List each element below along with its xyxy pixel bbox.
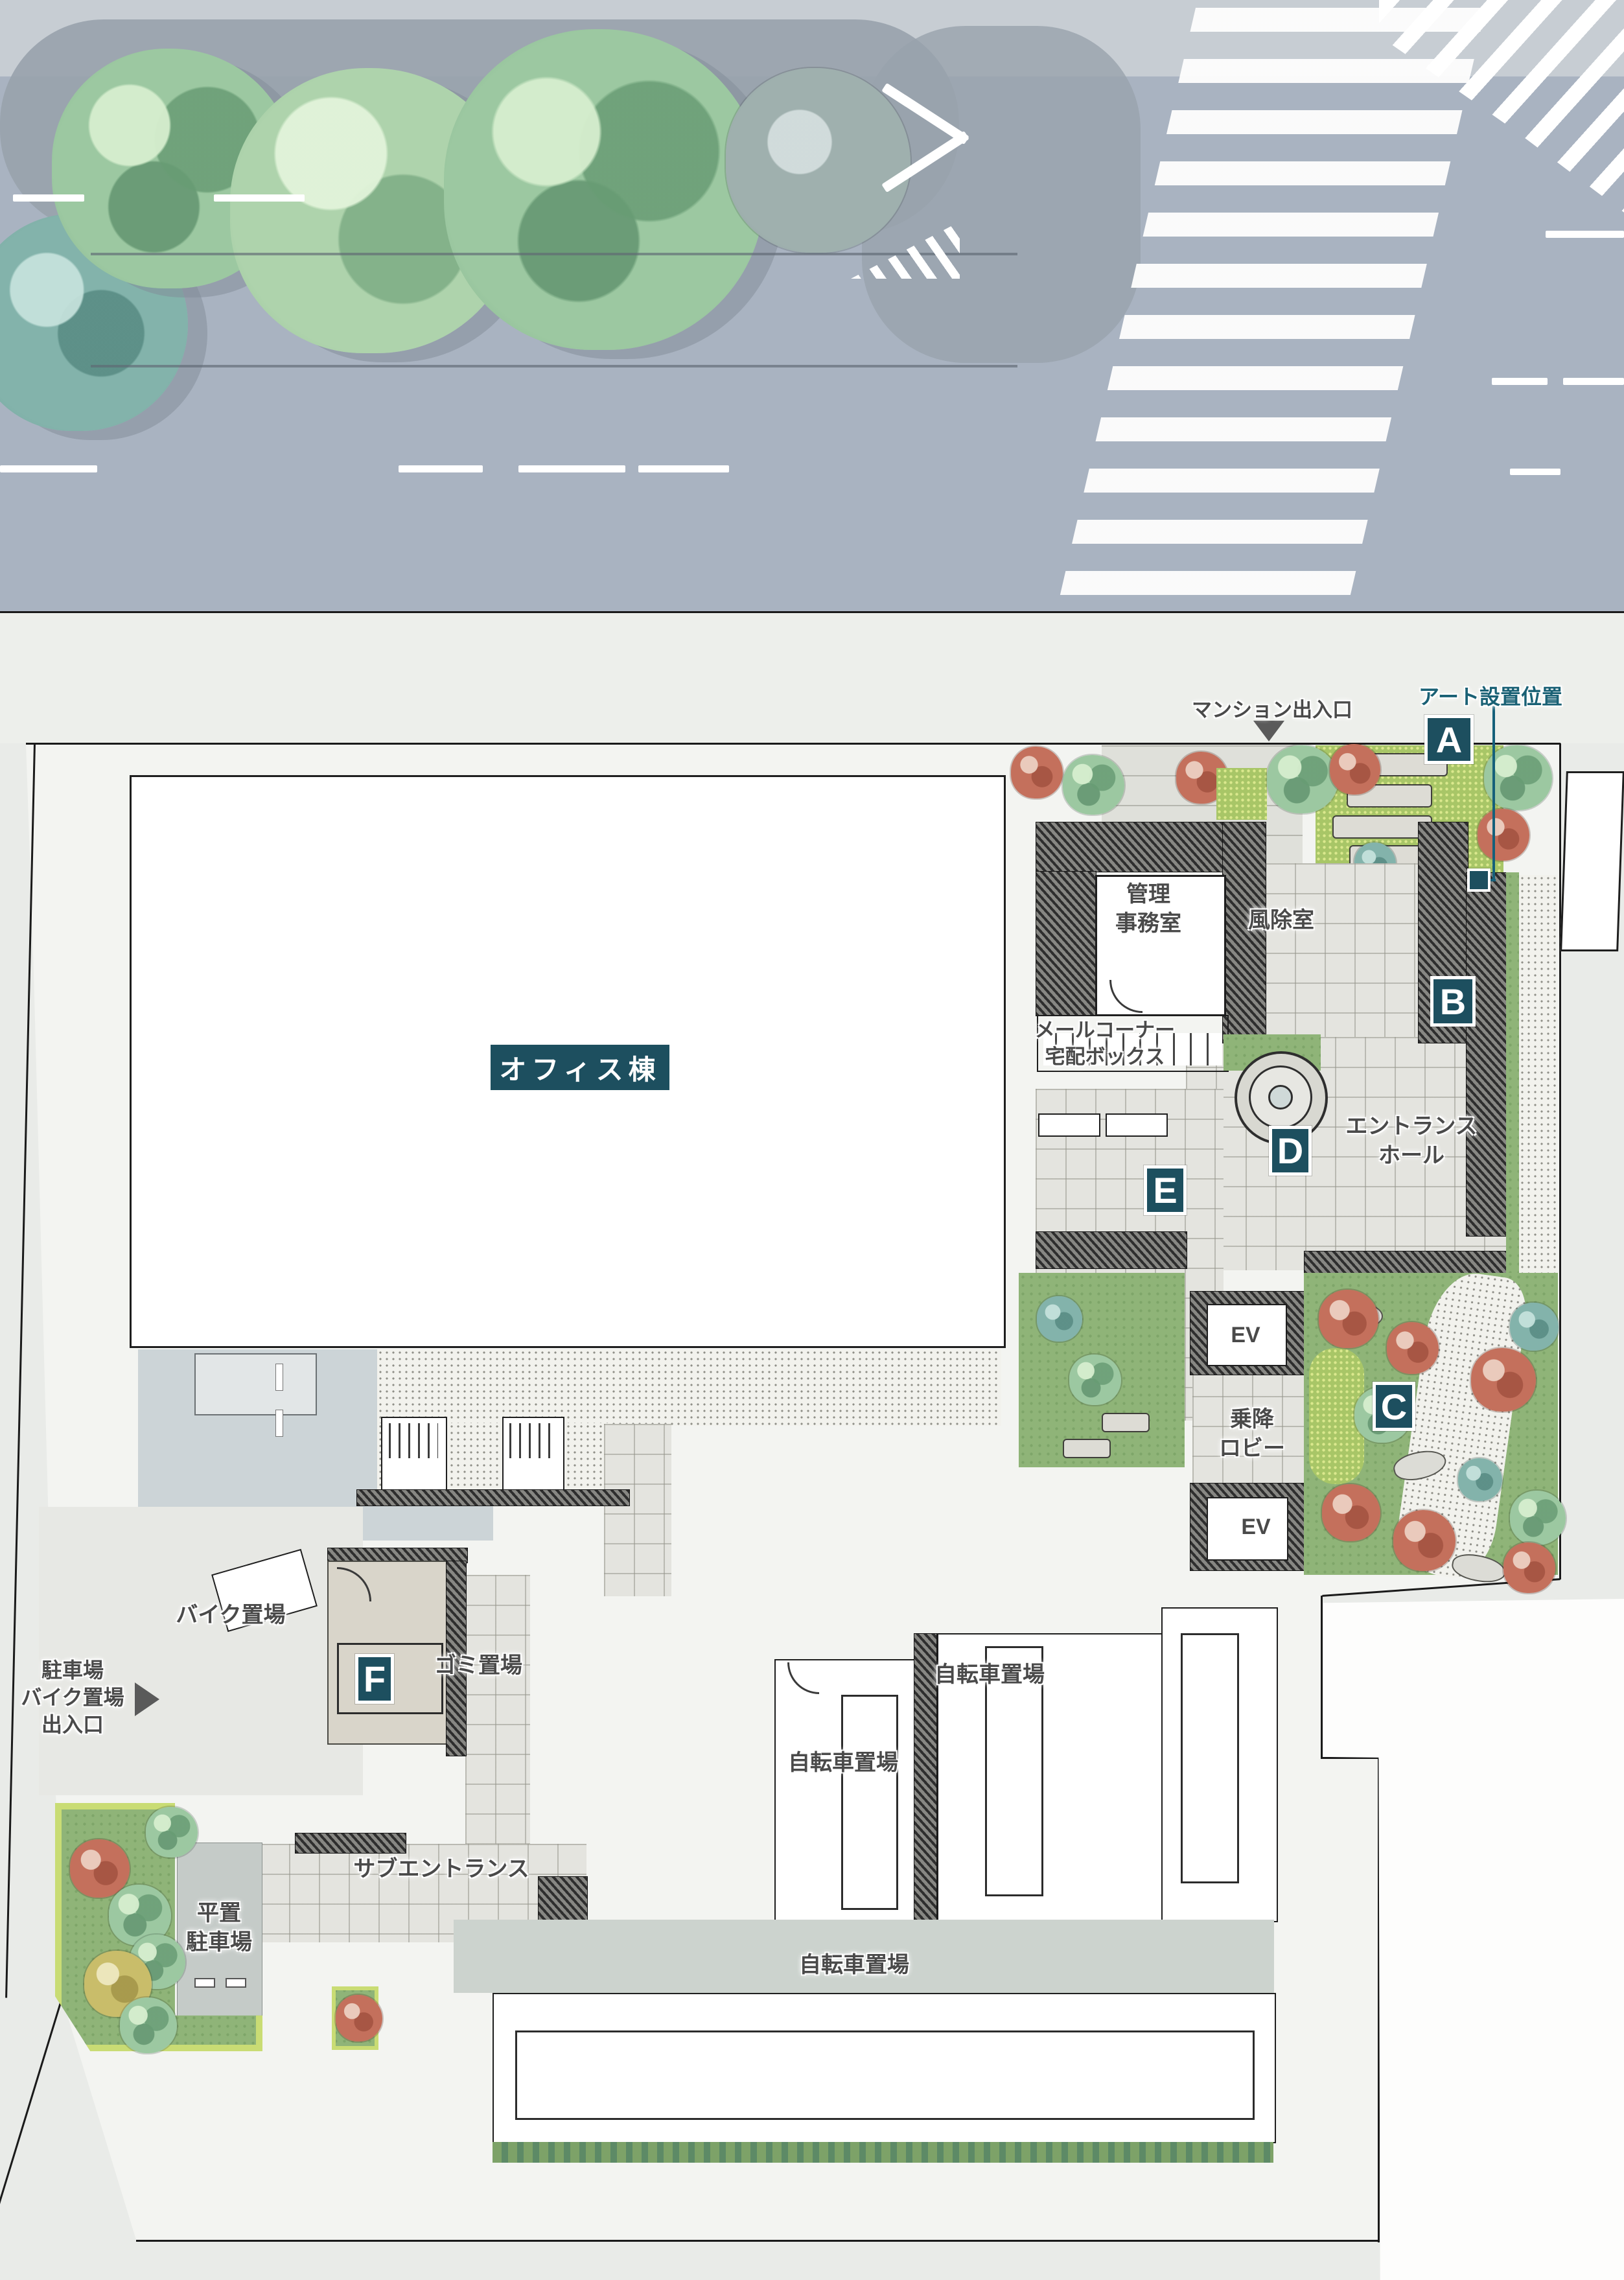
entrance-hall-l1: エントランス [1314, 1112, 1509, 1141]
sidewalk-band [0, 613, 1624, 743]
marker-e: E [1144, 1165, 1187, 1215]
bike-area-label: バイク置場 [133, 1601, 328, 1630]
street-tree-grey [726, 68, 911, 253]
marker-b: B [1430, 976, 1476, 1027]
lane-dash [638, 465, 729, 472]
stepping-stone [1332, 815, 1432, 839]
garden-tree-red [70, 1839, 130, 1898]
garden-tree-green [1510, 1491, 1566, 1545]
parking-entrance-l2: バイク置場 [8, 1684, 137, 1711]
garbage-label: ゴミ置場 [413, 1651, 543, 1681]
marker-c: C [1373, 1382, 1415, 1431]
stepping-stone [1063, 1439, 1111, 1458]
lane-dash [13, 194, 84, 202]
hedge-patch [1216, 768, 1267, 820]
management-office-l2: 事務室 [1084, 909, 1213, 938]
street-tree-green-3 [444, 29, 765, 350]
garden-tree-red [336, 1995, 382, 2042]
parking-entrance-l1: 駐車場 [8, 1657, 137, 1684]
road-centerline-2 [91, 365, 1017, 367]
bike-area-floor [39, 1507, 363, 1795]
art-position-square [1467, 868, 1491, 892]
parking-entrance-arrow [135, 1682, 159, 1716]
parking-entrance-label: 駐車場 バイク置場 出入口 [8, 1657, 137, 1739]
garden-tree-red [1322, 1484, 1380, 1541]
stepping-stone [1102, 1413, 1150, 1432]
wall [1466, 872, 1507, 1237]
marker-f: F [355, 1654, 394, 1704]
garden-shrub-teal [1037, 1296, 1082, 1342]
garden-tree-red [1503, 1542, 1555, 1593]
wall [1036, 1231, 1187, 1269]
site-plan: オフィス棟 [0, 0, 1624, 2280]
art-leader-line [1492, 699, 1495, 881]
marker-e-letter: E [1153, 1169, 1177, 1211]
garden-tree-red [1011, 747, 1063, 798]
flat-parking-label: 平置 駐車場 [154, 1899, 284, 1957]
marker-c-letter: C [1381, 1386, 1407, 1428]
bicycle-bottom-label: 自転車置場 [757, 1951, 951, 1980]
flat-parking-l2: 駐車場 [154, 1928, 284, 1957]
marker-b-letter: B [1440, 981, 1466, 1023]
garden-shrub-teal [1510, 1303, 1559, 1351]
gravel-area [377, 1349, 1001, 1426]
site-boundary-left [5, 743, 36, 1998]
garden-tree-green [146, 1807, 198, 1857]
stair-treads [389, 1423, 438, 1458]
entrance-hall-l2: ホール [1314, 1141, 1509, 1170]
marker-a: A [1424, 715, 1474, 764]
marker-d-letter: D [1277, 1130, 1303, 1172]
parking-entrance-l3: 出入口 [8, 1711, 137, 1738]
lobby-l1: 乗降 [1187, 1405, 1317, 1434]
lane-dash [0, 465, 97, 472]
ev-lower-label: EV [1224, 1513, 1288, 1542]
bike-rack-outline [841, 1695, 898, 1910]
marker-a-letter: A [1436, 719, 1462, 761]
bicycle-right-label: 自転車置場 [892, 1660, 1087, 1690]
pad-slot [275, 1364, 283, 1391]
wall [295, 1833, 406, 1854]
site-boundary-right [1559, 743, 1561, 1579]
equipment-pad [194, 1353, 317, 1415]
bike-rack-outline [515, 2030, 1255, 2120]
wheel-stop [226, 1978, 246, 1988]
garden-tree-green [1267, 745, 1338, 813]
fountain-center [1268, 1085, 1293, 1110]
bike-rack-outline [1181, 1633, 1239, 1883]
site-boundary-corner [0, 1996, 64, 2242]
site-boundary [1321, 1596, 1323, 1759]
office-building-label: オフィス棟 [491, 1045, 669, 1090]
garden-tree-green [120, 1997, 177, 2053]
ev-upper-label: EV [1213, 1321, 1278, 1350]
garden-tree-red [1471, 1348, 1536, 1412]
lane-dash [518, 465, 625, 472]
lane-dash [1563, 378, 1624, 385]
entrance-hall-label: エントランス ホール [1314, 1112, 1509, 1170]
mail-corner-label: メールコーナー 宅配ボックス [1001, 1018, 1209, 1071]
delivery-box-counter [1038, 1113, 1100, 1137]
management-office-label: 管理 事務室 [1084, 880, 1213, 938]
neighbor-building [1560, 771, 1624, 951]
garden-tree-green [1063, 755, 1124, 815]
pad-slot [275, 1410, 283, 1437]
mail-corner-l2: 宅配ボックス [1001, 1044, 1209, 1071]
lane-dash [1510, 469, 1560, 475]
garden-tree-red [1387, 1322, 1439, 1374]
bicycle-left-label: 自転車置場 [746, 1749, 940, 1778]
site-boundary-bottom [136, 2240, 1379, 2242]
windbreak-label: 風除室 [1216, 906, 1346, 935]
office-label-text: オフィス棟 [499, 1048, 660, 1088]
delivery-box-counter [1106, 1113, 1168, 1137]
wall [356, 1489, 630, 1506]
garden-tree-red [1330, 744, 1380, 795]
marker-f-letter: F [364, 1658, 386, 1700]
lane-dash [399, 465, 483, 472]
garden-shrub-teal [1458, 1458, 1502, 1501]
corridor-tiles [604, 1424, 671, 1596]
wall [1036, 822, 1225, 872]
lane-dash [214, 194, 305, 202]
lobby-l2: ロビー [1187, 1434, 1317, 1463]
marker-d: D [1269, 1126, 1312, 1176]
hedge-strip [493, 2142, 1273, 2163]
lane-dash [1546, 231, 1624, 238]
mansion-exit-label: マンション出入口 [1175, 697, 1369, 724]
garden-tree-red [1319, 1290, 1378, 1348]
lobby-label: 乗降 ロビー [1187, 1405, 1317, 1463]
windbreak-floor [1265, 863, 1418, 1037]
garden-tree-green [1069, 1355, 1121, 1405]
sub-entrance-label: サブエントランス [325, 1855, 558, 1884]
lane-dash [1492, 378, 1548, 385]
mail-corner-l1: メールコーナー [1001, 1018, 1209, 1044]
site-boundary-top [26, 743, 1560, 745]
wheel-stop [194, 1978, 215, 1988]
road-centerline-1 [91, 253, 1017, 255]
management-office-l1: 管理 [1084, 880, 1213, 909]
flat-parking-l1: 平置 [154, 1899, 284, 1928]
stair-treads [509, 1423, 555, 1458]
garden-tree-red [1478, 809, 1529, 861]
garden-tree-red [1393, 1510, 1456, 1571]
art-position-label: アート設置位置 [1393, 683, 1588, 710]
